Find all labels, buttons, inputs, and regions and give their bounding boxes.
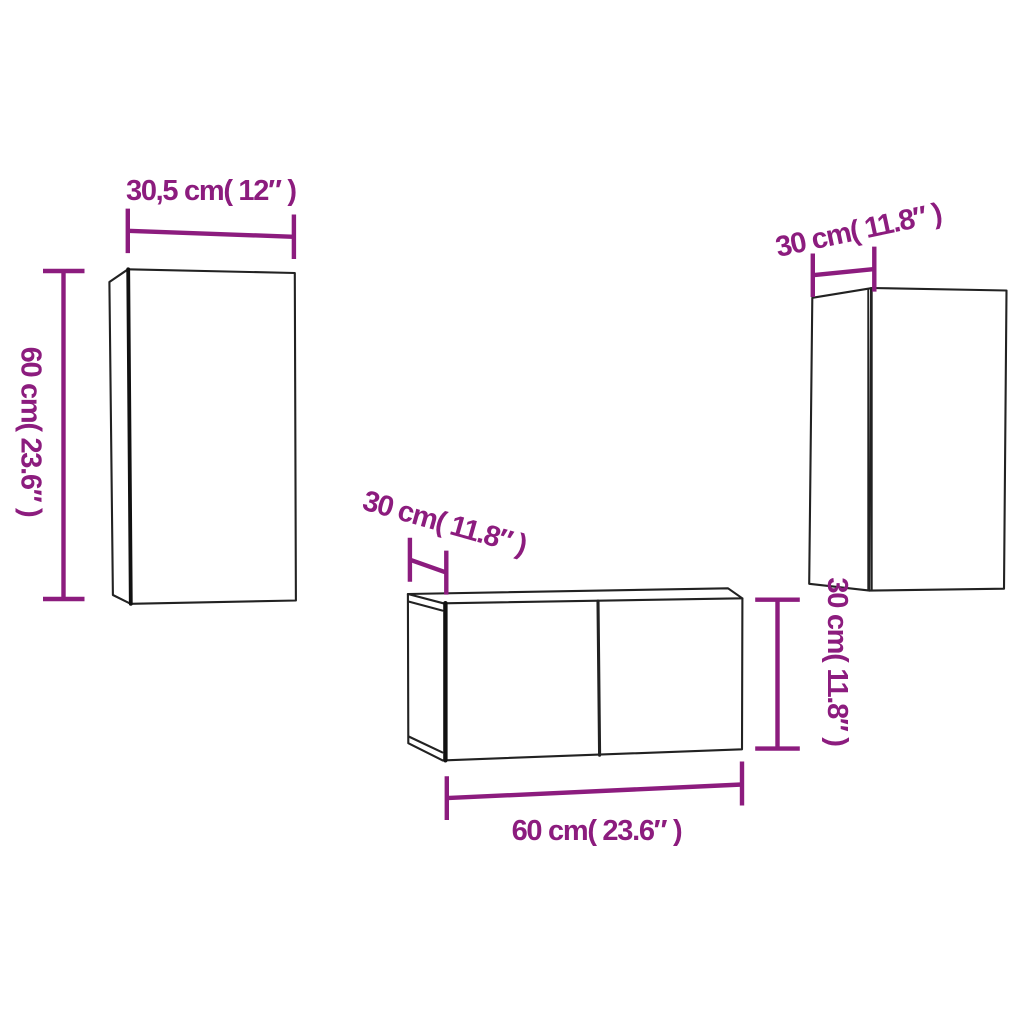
svg-text:60 cm( 23.6″ ): 60 cm( 23.6″ ) [512,815,682,847]
svg-text:60 cm( 23.6″ ): 60 cm( 23.6″ ) [15,347,47,517]
svg-text:30 cm( 11.8″ ): 30 cm( 11.8″ ) [821,577,853,746]
svg-text:30,5 cm( 12″ ): 30,5 cm( 12″ ) [126,175,296,207]
